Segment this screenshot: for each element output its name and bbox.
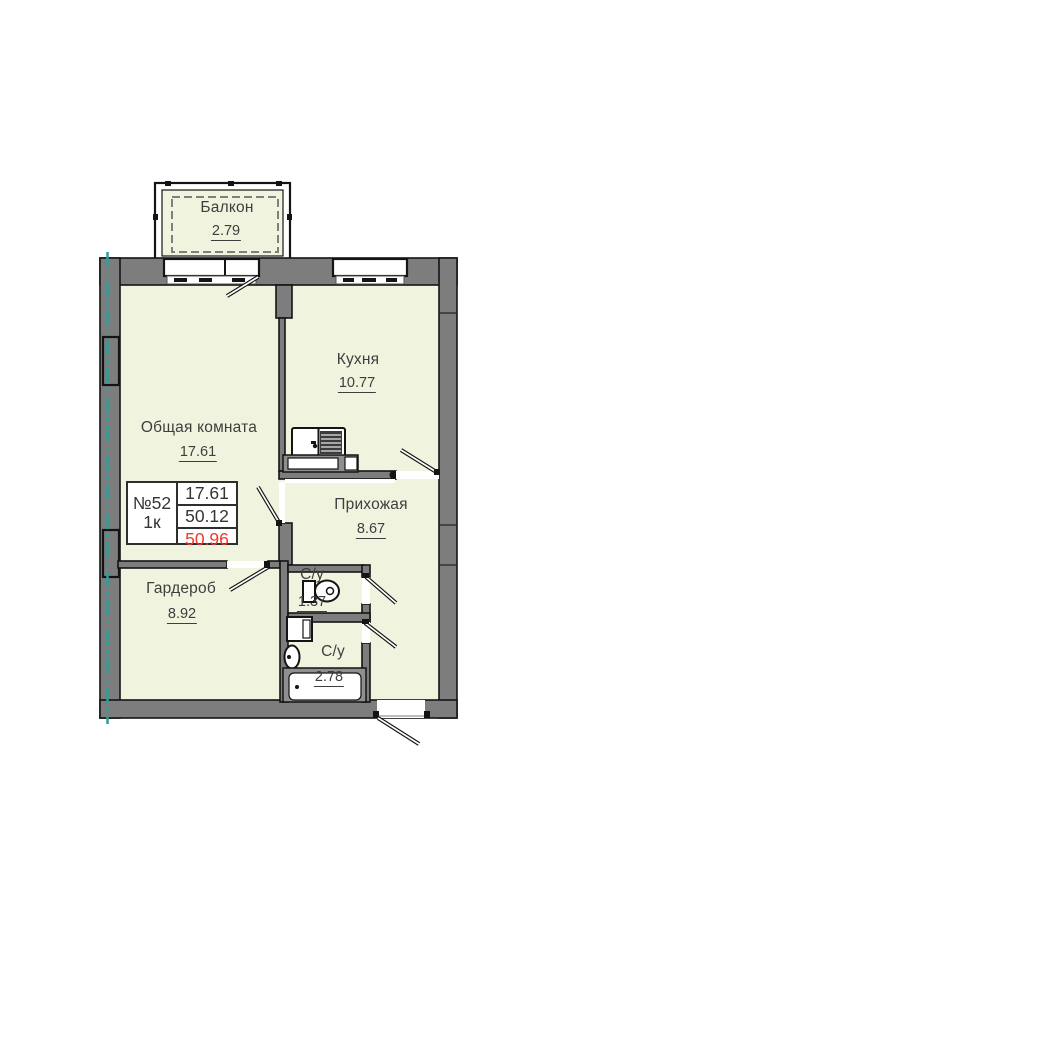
label-balcony-name: Балкон bbox=[200, 199, 253, 217]
label-hallway-name: Прихожая bbox=[334, 496, 407, 514]
unit-total-area: 50.96 bbox=[178, 529, 236, 550]
floor-plan: Балкон 2.79 Кухня 10.77 Общая комната 17… bbox=[0, 0, 1041, 1041]
unit-number: №52 bbox=[133, 494, 171, 513]
washing-machine bbox=[287, 617, 312, 641]
label-wardrobe-area: 8.92 bbox=[167, 606, 197, 624]
label-wc-small-name: С/у bbox=[300, 566, 324, 584]
label-bathroom-area: 2.78 bbox=[314, 669, 344, 687]
unit-id-cell: №52 1к bbox=[128, 483, 178, 543]
label-living-room-area: 17.61 bbox=[179, 444, 217, 462]
unit-area-without-balcony: 50.12 bbox=[178, 506, 236, 529]
unit-living-area: 17.61 bbox=[178, 483, 236, 506]
unit-areas-cells: 17.61 50.12 50.96 bbox=[178, 483, 236, 543]
living-room-window bbox=[164, 259, 259, 284]
label-kitchen-area: 10.77 bbox=[338, 375, 376, 393]
balcony-structure bbox=[153, 181, 292, 263]
label-hallway-area: 8.67 bbox=[356, 521, 386, 539]
entrance-door-leaf bbox=[378, 718, 419, 744]
label-living-room-name: Общая комната bbox=[141, 419, 257, 437]
kitchen-window bbox=[333, 259, 407, 284]
bathroom-sink bbox=[285, 646, 300, 669]
label-bathroom-name: С/у bbox=[321, 643, 345, 661]
unit-rooms-type: 1к bbox=[143, 513, 160, 532]
label-wardrobe-name: Гардероб bbox=[146, 580, 216, 598]
label-kitchen-name: Кухня bbox=[337, 351, 379, 369]
label-wc-small-area: 1.37 bbox=[297, 594, 327, 612]
label-balcony-area: 2.79 bbox=[211, 223, 241, 241]
unit-info-card: №52 1к 17.61 50.12 50.96 bbox=[126, 481, 238, 545]
